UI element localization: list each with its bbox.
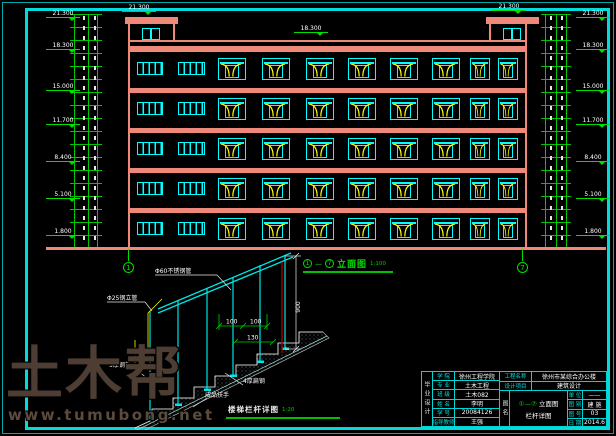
balcony-door-window xyxy=(306,178,334,200)
title-block-cell-label: 专 业 xyxy=(433,381,455,389)
balcony-door-window xyxy=(432,98,460,120)
note-handrail: 成品扶手 xyxy=(205,391,229,399)
stair-detail-caption: 楼梯栏杆详图 1:20 xyxy=(228,404,294,415)
balcony-door-window xyxy=(432,178,460,200)
title-block-cell-value: 2014.6 xyxy=(583,419,606,426)
level-mark-right: 15.000 xyxy=(576,83,610,91)
balcony-door-window xyxy=(498,218,518,240)
title-block-row: 图 号03 xyxy=(568,410,606,419)
title-block-row: 日 期2014.6 xyxy=(568,419,606,427)
level-mark-right: 18.300 xyxy=(576,42,610,50)
window xyxy=(137,62,163,75)
balcony-door-window xyxy=(498,178,518,200)
tb-meta-rows: 单 位——图 别建 施图 号03日 期2014.6 xyxy=(568,391,606,427)
title-block-row: 单 位—— xyxy=(568,391,606,400)
dim-label-900: 900 xyxy=(295,301,302,313)
drawing-name-line2: 栏杆详图 xyxy=(526,410,552,420)
axis-bubble-7: 7 xyxy=(517,262,528,273)
title-block-cell-label: 班 级 xyxy=(433,390,455,398)
dim-label: 130 xyxy=(247,335,259,342)
balcony-door-window xyxy=(470,218,490,240)
balcony-door-window xyxy=(432,138,460,160)
title-block-cell-value: —— xyxy=(583,392,606,399)
balcony-door-window xyxy=(348,178,376,200)
title-block-cell-label: 设计项目 xyxy=(500,382,532,391)
level-mark-bulkhead-right: 21.300 xyxy=(492,3,526,11)
window xyxy=(137,102,163,115)
title-block-cell-label: 日 期 xyxy=(568,419,583,427)
title-block-cell-label: 图 别 xyxy=(568,400,583,408)
balcony-door-window xyxy=(306,218,334,240)
balcony-door-window xyxy=(306,138,334,160)
level-mark-right: 1.800 xyxy=(576,228,610,236)
note-flat-steel: 4厚扁钢 xyxy=(243,377,265,385)
watermark-url: www.tumubong.net xyxy=(8,406,215,424)
level-mark-roof: 18.300 xyxy=(294,25,328,33)
title-block-cell-label: 姓 名 xyxy=(433,400,455,408)
balcony-door-window xyxy=(218,218,246,240)
dim-label: 100 xyxy=(250,319,262,326)
title-block-row: 姓 名李明 xyxy=(433,400,499,409)
balcony-door-window xyxy=(390,98,418,120)
title-block-cell-label: 学 号 xyxy=(433,409,455,417)
balcony-door-window xyxy=(470,58,490,80)
balcony-door-window xyxy=(218,98,246,120)
tb-project-rows: 工程名称徐州市某综合办公楼设计项目建筑设计 xyxy=(500,372,606,391)
title-block-row: 设计项目建筑设计 xyxy=(500,382,606,391)
level-mark-left: 21.300 xyxy=(46,10,80,18)
title-block-cell-value: 建筑设计 xyxy=(532,381,606,390)
balcony-door-window xyxy=(348,138,376,160)
balcony-door-window xyxy=(218,58,246,80)
title-block-cell-value: 建 施 xyxy=(583,400,606,409)
note-steel-post: Φ25钢立管 xyxy=(107,294,137,302)
title-block-cell-value: 03 xyxy=(583,410,606,417)
window xyxy=(178,62,205,75)
window xyxy=(178,102,205,115)
balcony-door-window xyxy=(390,138,418,160)
stair-detail-scale: 1:20 xyxy=(282,407,294,413)
window xyxy=(178,182,205,195)
level-mark-left: 18.300 xyxy=(46,42,80,50)
balcony-door-window xyxy=(306,58,334,80)
dim-label: 100 xyxy=(226,319,238,326)
window xyxy=(137,182,163,195)
title-block-cell-label: 图 号 xyxy=(568,410,583,418)
balcony-door-window xyxy=(432,218,460,240)
level-mark-bulkhead-left: 21.300 xyxy=(122,4,156,12)
title-block-cell-value: 土木工程 xyxy=(455,381,499,390)
balcony-door-window xyxy=(218,178,246,200)
balcony-door-window xyxy=(262,138,290,160)
level-mark-left: 11.700 xyxy=(46,117,80,125)
title-block-cell-label: 单 位 xyxy=(568,391,583,399)
balcony-door-window xyxy=(470,98,490,120)
level-mark-right: 5.100 xyxy=(576,191,610,199)
window xyxy=(137,142,163,155)
balcony-door-window xyxy=(348,58,376,80)
balcony-door-window xyxy=(498,98,518,120)
title-block-cell-value: 王强 xyxy=(455,417,499,426)
level-mark-right: 11.700 xyxy=(576,117,610,125)
window xyxy=(178,222,205,235)
level-mark-left: 8.400 xyxy=(46,154,80,162)
drawing-name: ①—⑦立面图 栏杆详图 xyxy=(510,391,568,427)
title-block-cell-label: 学 院 xyxy=(433,372,455,380)
title-block-row: 指导教师王强 xyxy=(433,418,499,426)
balcony-door-window xyxy=(262,98,290,120)
elevation-scale: 1:100 xyxy=(370,261,386,267)
balcony-door-window xyxy=(218,138,246,160)
balcony-door-window xyxy=(432,58,460,80)
cad-drawing-sheet: 1 7 1 — 7 立面图 1:100 xyxy=(0,0,616,436)
title-block-cell-value: 徐州市某综合办公楼 xyxy=(532,372,606,381)
drawing-name-line1: 立面图 xyxy=(539,400,559,408)
title-block-row: 图 别建 施 xyxy=(568,400,606,409)
stair-detail-title: 楼梯栏杆详图 xyxy=(228,404,279,415)
title-block-side-label: 毕业设计 xyxy=(422,372,433,426)
balcony-door-window xyxy=(262,178,290,200)
spacing-dimensions xyxy=(216,314,276,345)
balcony-door-window xyxy=(262,218,290,240)
level-mark-right: 21.300 xyxy=(576,10,610,18)
note-stainless-rail: Φ60不锈钢管 xyxy=(155,267,191,275)
title-block-row: 工程名称徐州市某综合办公楼 xyxy=(500,372,606,382)
title-block-cell-value: 20084126 xyxy=(455,409,499,416)
window xyxy=(137,222,163,235)
level-mark-left: 1.800 xyxy=(46,228,80,236)
watermark-logo: 土木帮 xyxy=(6,346,183,403)
balcony-door-window xyxy=(498,58,518,80)
title-block-cell-label: 工程名称 xyxy=(500,372,532,381)
balcony-door-window xyxy=(470,178,490,200)
title-block-cell-value: 徐州工程学院 xyxy=(455,372,499,381)
balcony-door-window xyxy=(348,218,376,240)
balcony-door-window xyxy=(262,58,290,80)
balcony-door-window xyxy=(470,138,490,160)
balcony-door-window xyxy=(390,58,418,80)
level-mark-left: 15.000 xyxy=(46,83,80,91)
level-mark-right: 8.400 xyxy=(576,154,610,162)
title-block-cell-value: 土木082 xyxy=(455,390,499,399)
drawing-name-axes: ①—⑦ xyxy=(519,400,537,408)
stair-caption-underline xyxy=(226,417,340,419)
title-block-cell-label: 指导教师 xyxy=(433,418,455,426)
balcony-door-window xyxy=(390,178,418,200)
balcony-door-window xyxy=(306,98,334,120)
balcony-door-window xyxy=(390,218,418,240)
balcony-door-window xyxy=(348,98,376,120)
title-block-cell-value: 李明 xyxy=(455,399,499,408)
tb-left-rows: 学 院徐州工程学院专 业土木工程班 级土木082姓 名李明学 号20084126… xyxy=(433,372,500,426)
balcony-door-window xyxy=(498,138,518,160)
title-block: 毕业设计 学 院徐州工程学院专 业土木工程班 级土木082姓 名李明学 号200… xyxy=(421,371,607,427)
window xyxy=(178,142,205,155)
level-mark-left: 5.100 xyxy=(46,191,80,199)
building-windows xyxy=(128,13,527,253)
drawing-name-label: 图名 xyxy=(500,391,510,427)
